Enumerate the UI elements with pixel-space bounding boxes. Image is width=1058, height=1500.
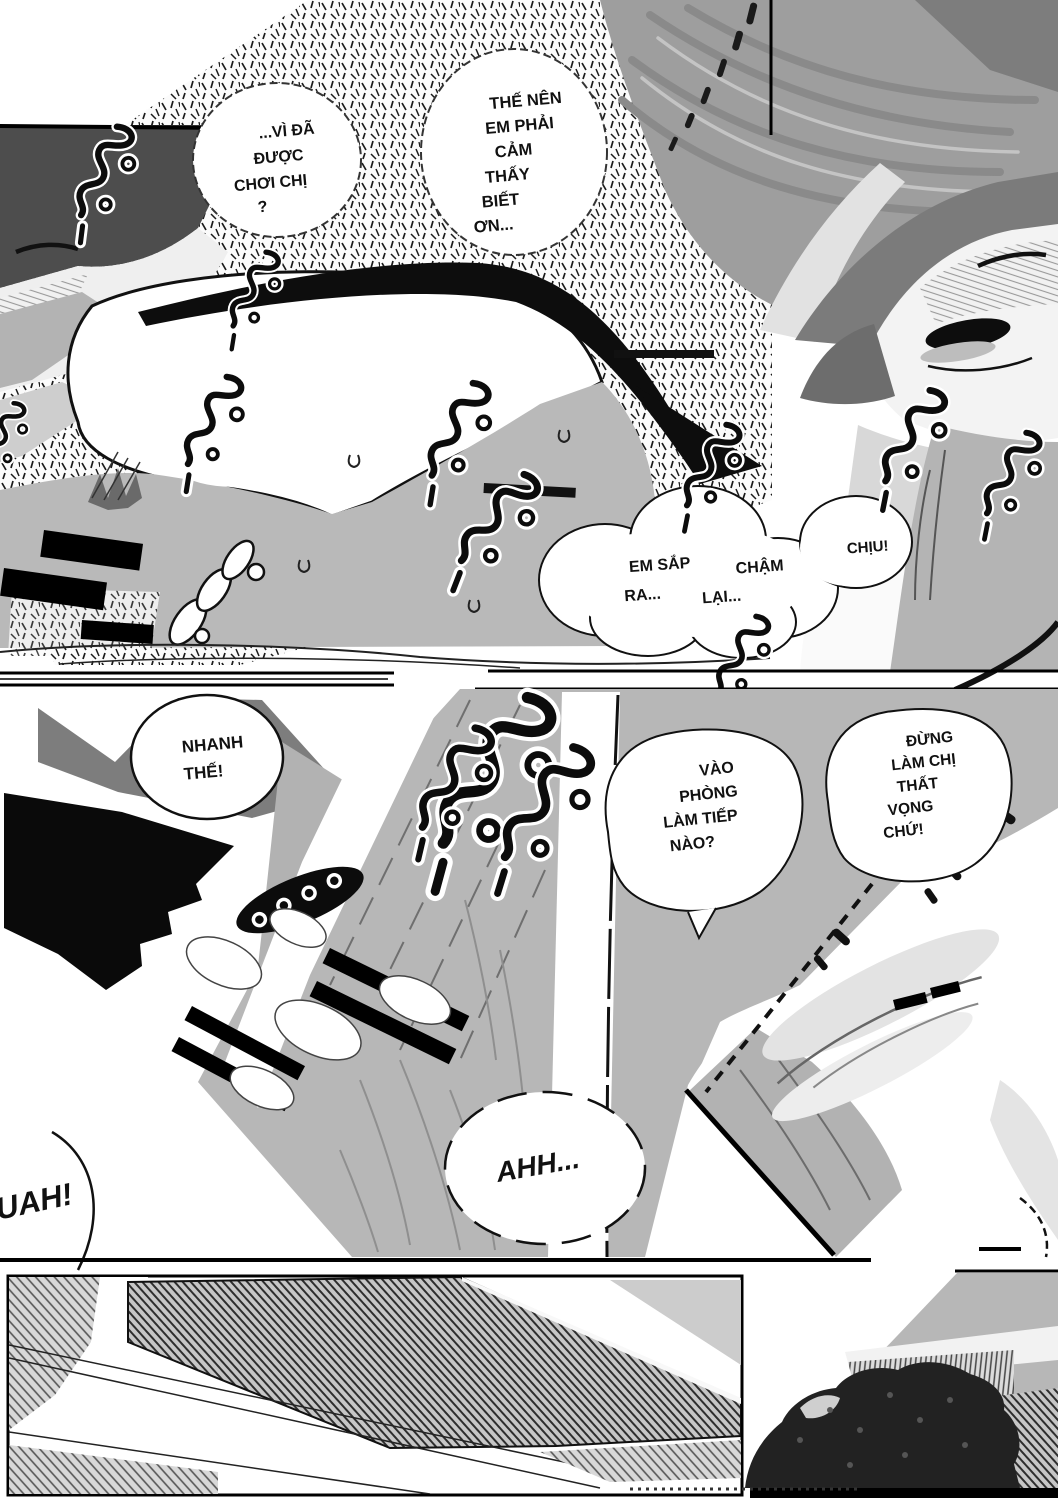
svg-text:CẢM: CẢM	[494, 139, 533, 161]
svg-text:ƠN...: ƠN...	[473, 215, 514, 236]
svg-text:?: ?	[257, 199, 268, 217]
svg-text:BIẾT: BIẾT	[481, 189, 520, 211]
svg-text:THẾ!: THẾ!	[183, 761, 224, 783]
svg-text:LẠI...: LẠI...	[702, 588, 742, 608]
svg-text:RA...: RA...	[624, 586, 662, 606]
svg-text:CHỊU!: CHỊU!	[846, 538, 889, 558]
svg-text:THẤY: THẤY	[484, 164, 530, 187]
